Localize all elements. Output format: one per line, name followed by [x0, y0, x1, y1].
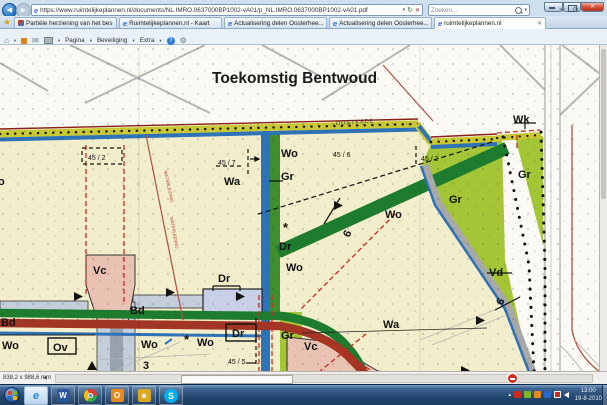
vertical-scrollbar[interactable]: [599, 45, 607, 371]
forward-icon: ▶: [21, 7, 26, 14]
show-desktop-button[interactable]: [602, 385, 607, 405]
search-box[interactable]: Zoeken... ▾: [428, 4, 530, 16]
zone-label-wo: Wo: [197, 337, 214, 349]
chevron-down-icon[interactable]: ▾: [14, 38, 16, 44]
windows-flag-icon: [8, 391, 12, 395]
hidden-icons-arrow[interactable]: ▴: [508, 392, 511, 398]
url-text: https://www.ruimtelijkeplannen.nl/docume…: [40, 7, 400, 14]
number-label: 3: [143, 360, 149, 371]
toolbar-right-icons: ⌂ ★ ⚙: [548, 6, 579, 14]
gold-star-icon: ★: [138, 389, 151, 402]
zone-label-dr: Dr: [279, 241, 292, 253]
scroll-left-icon[interactable]: ◀: [43, 375, 47, 381]
favorites-star-button[interactable]: ★: [3, 17, 11, 28]
vertical-scroll-thumb[interactable]: [601, 49, 606, 199]
search-dropdown-icon[interactable]: ▾: [524, 7, 527, 13]
skype-icon: S: [164, 389, 178, 403]
address-dropdown-icon[interactable]: ▾: [403, 7, 406, 13]
outlook-icon: O: [111, 389, 124, 402]
zone-label-bd: Bd: [130, 305, 145, 317]
notification-icon[interactable]: [507, 373, 518, 384]
chevron-down-icon: ▾: [132, 38, 134, 44]
zone-label-wo: Wo: [385, 209, 402, 221]
code-label: 45 / 2: [88, 155, 106, 162]
zone-label-wo: Wo: [141, 339, 158, 351]
zone-label-wk: Wk: [513, 114, 530, 126]
extra-menu-button[interactable]: Extra: [140, 37, 155, 44]
address-bar[interactable]: e https://www.ruimtelijkeplannen.nl/docu…: [31, 4, 423, 16]
beveiliging-menu-button[interactable]: Beveiliging: [97, 37, 127, 44]
help-icon[interactable]: ?: [167, 37, 175, 45]
print-icon[interactable]: [44, 37, 53, 44]
feed-icon[interactable]: [21, 38, 27, 44]
site-favicon: e: [34, 7, 38, 14]
mail-icon[interactable]: ✉: [32, 37, 39, 45]
ie-icon: e: [33, 390, 39, 402]
zone-label-partial: o: [0, 176, 5, 188]
taskbar: e W O ★ S ▴ 13:00 19-8-2010: [0, 384, 607, 405]
tab-ruimtelijkeplannen-kaart[interactable]: e Ruimtelijkeplannen.nl - Kaart: [119, 17, 222, 28]
tab-label: Partiële herziening van het bes...: [26, 20, 113, 27]
windows-flag-icon: [13, 391, 17, 395]
pagina-menu-button[interactable]: Pagina: [65, 37, 85, 44]
zone-label-bd: Bd: [1, 317, 16, 329]
zone-label-gr: Gr: [281, 330, 295, 342]
zone-label-wa: Wa: [383, 319, 400, 331]
pdf-viewport[interactable]: Toekomstig Bentwoud OOSTKADE 45 / 2 45 /…: [0, 45, 607, 371]
zone-label-gr: Gr: [449, 194, 463, 206]
tab-actualisering-2[interactable]: e Actualisering delen Oosterhee...: [329, 17, 432, 28]
tab-active-pdf[interactable]: e ruimtelijkeplannen.nl ✕: [434, 17, 546, 29]
taskbar-outlook-button[interactable]: O: [105, 386, 129, 405]
menu-bar: Bestand Bewerken Ga naar Favorieten Help: [0, 29, 607, 37]
paper-fold: [419, 45, 421, 371]
search-placeholder: Zoeken...: [431, 7, 513, 14]
tray-icon-alert[interactable]: [554, 391, 561, 398]
home-icon[interactable]: ⌂: [548, 6, 553, 14]
windows-flag-icon: [8, 396, 12, 400]
tray-icon-orange[interactable]: [534, 391, 541, 398]
windows-flag-icon: [13, 396, 17, 400]
clock-time: 13:00: [575, 387, 602, 395]
horizontal-scroll-thumb[interactable]: [181, 375, 293, 384]
ie-favicon: e: [123, 20, 127, 27]
zone-label-ov: Ov: [53, 342, 69, 354]
volume-icon[interactable]: [564, 392, 569, 398]
paper-fold: [138, 45, 140, 371]
back-icon: ◀: [7, 7, 12, 14]
map-title: Toekomstig Bentwoud: [212, 70, 377, 87]
browser-window: ✕ ◀ ▶ e https://www.ruimtelijkeplannen.n…: [0, 0, 607, 405]
zone-label-vc: Vc: [93, 265, 106, 277]
zoning-map: Toekomstig Bentwoud OOSTKADE 45 / 2 45 /…: [0, 45, 607, 371]
tray-icon-green[interactable]: [524, 391, 531, 398]
taskbar-skype-button[interactable]: S: [159, 386, 183, 405]
taskbar-clock[interactable]: 13:00 19-8-2010: [575, 387, 602, 403]
tab-label: Ruimtelijkeplannen.nl - Kaart: [129, 20, 218, 27]
tab-actualisering-1[interactable]: e Actualisering delen Oosterhee...: [224, 17, 327, 28]
word-icon: W: [57, 389, 70, 402]
tab-label: Actualisering delen Oosterhee...: [234, 20, 323, 27]
code-label: 45 / 6: [333, 152, 351, 159]
chevron-down-icon[interactable]: ▾: [58, 38, 60, 44]
favorites-icon[interactable]: ★: [559, 6, 566, 14]
code-label: 45 / 5: [228, 359, 246, 366]
taskbar-chrome-button[interactable]: [78, 386, 102, 405]
zone-label-dr: Dr: [232, 328, 245, 340]
search-icon[interactable]: [515, 7, 522, 14]
zone-label-gr: Gr: [281, 171, 295, 183]
tab-partiele-herziening[interactable]: Partiële herziening van het bes...: [14, 17, 117, 28]
ie-favicon: e: [333, 20, 337, 27]
dot-texture: [0, 45, 607, 371]
close-button[interactable]: ✕: [581, 2, 604, 12]
tab-close-icon[interactable]: ✕: [537, 20, 542, 27]
zone-label-gr: Gr: [518, 169, 532, 181]
refresh-icon[interactable]: ↻: [407, 6, 413, 14]
zone-label-wa: Wa: [224, 176, 241, 188]
code-label: 45 / 2: [421, 156, 439, 163]
close-icon: ✕: [582, 3, 603, 11]
clock-date: 19-8-2010: [575, 395, 602, 403]
tray-icon-red[interactable]: [514, 391, 521, 398]
chevron-down-icon: ▾: [159, 38, 161, 44]
tray-icon-blue[interactable]: [544, 391, 551, 398]
system-tray: ▴: [508, 391, 569, 398]
zone-label-wo: Wo: [281, 148, 298, 160]
chevron-down-icon: ▾: [90, 38, 92, 44]
taskbar-word-button[interactable]: W: [51, 386, 75, 405]
zone-label-dr: Dr: [218, 273, 231, 285]
notification-bar: [510, 378, 515, 380]
gear-icon[interactable]: ⚙: [572, 6, 579, 14]
taskbar-search-app-button[interactable]: ★: [132, 386, 156, 405]
start-button[interactable]: [4, 387, 20, 403]
chrome-icon: [84, 389, 97, 402]
zone-label-wo: Wo: [286, 262, 303, 274]
tools-gear-icon[interactable]: ⚙: [180, 37, 187, 45]
page-favicon: [18, 20, 24, 26]
taskbar-ie-button[interactable]: e: [24, 386, 48, 405]
zone-label-wo: Wo: [2, 340, 19, 352]
code-label: 45 / 7: [218, 160, 236, 167]
zone-label-vd: Vd: [489, 267, 503, 279]
ie-favicon: e: [438, 20, 442, 27]
stop-icon[interactable]: ✕: [415, 7, 420, 14]
zone-label-vc: Vc: [304, 341, 317, 353]
tab-label: ruimtelijkeplannen.nl: [444, 20, 535, 27]
tab-strip: ★ Partiële herziening van het bes... e R…: [0, 16, 607, 29]
tab-label: Actualisering delen Oosterhee...: [339, 20, 428, 27]
ie-favicon: e: [228, 20, 232, 27]
home-command-icon[interactable]: ⌂: [4, 37, 9, 45]
command-bar: ⌂ ▾ ✉ ▾ Pagina ▾ Beveiliging ▾ Extra ▾ ?…: [0, 37, 607, 45]
